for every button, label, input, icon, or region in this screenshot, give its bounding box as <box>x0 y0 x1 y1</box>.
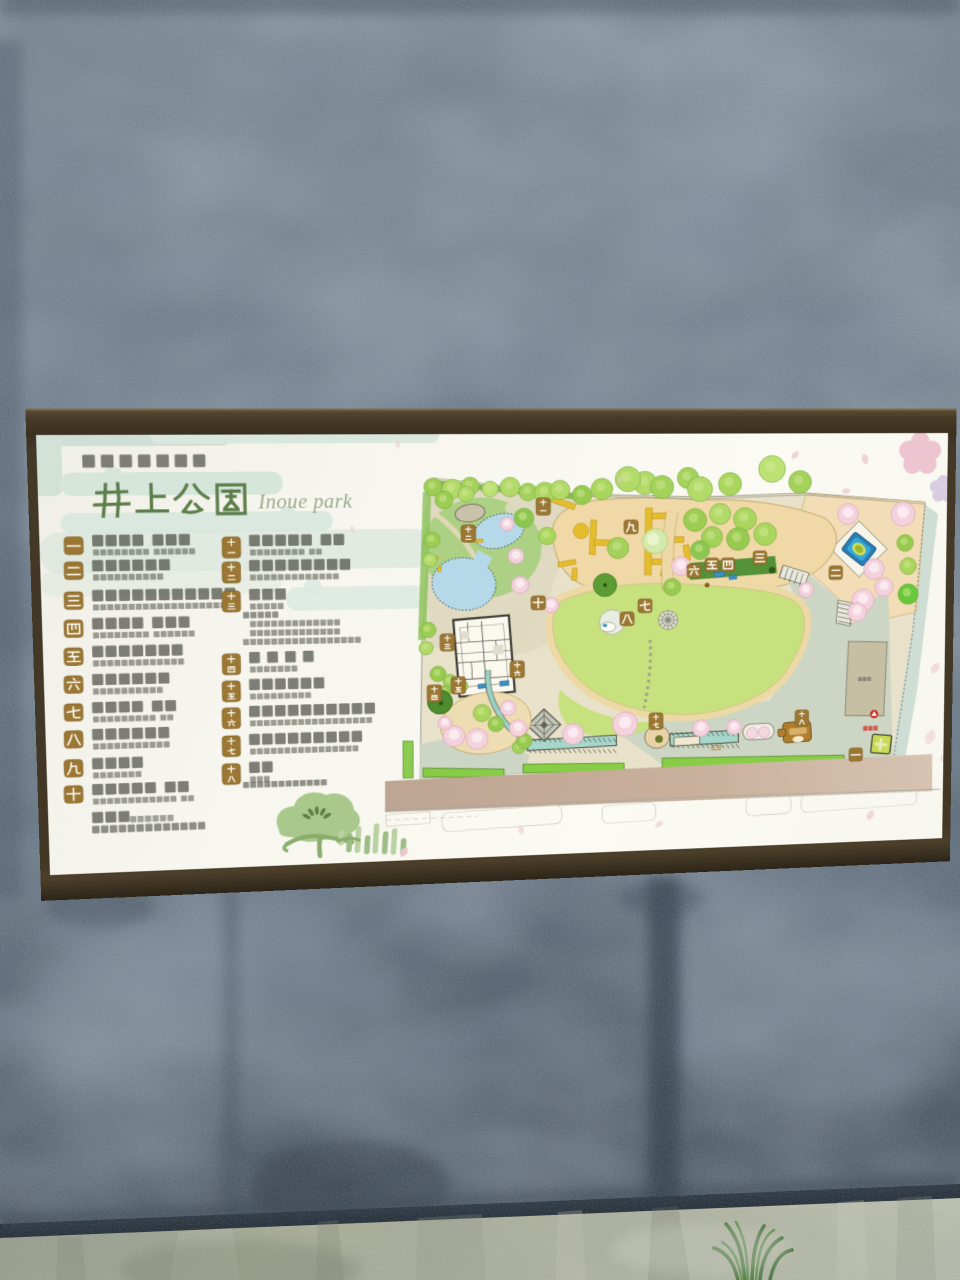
svg-text:Inoue park: Inoue park <box>257 490 353 513</box>
